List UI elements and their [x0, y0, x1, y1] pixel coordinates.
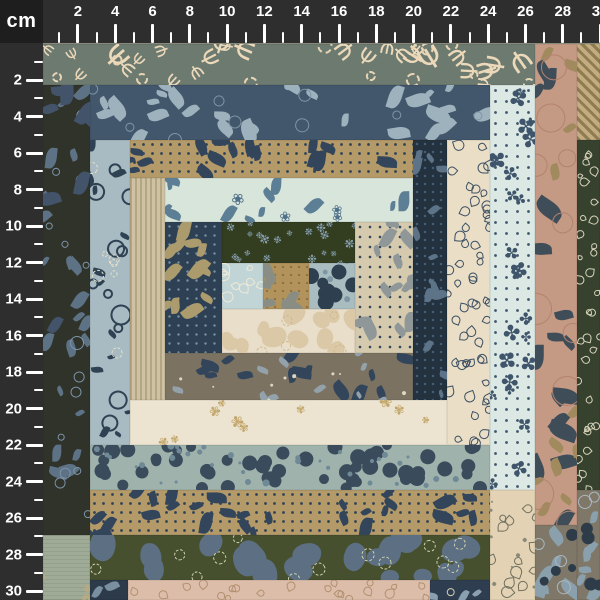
fabric-motif: [401, 280, 413, 294]
fabric-motif: [473, 103, 490, 125]
major-tick-left: [26, 407, 43, 410]
fabric-motif: [57, 434, 64, 441]
fabric-motif: [582, 546, 591, 562]
fabric-motif: ✾: [419, 413, 431, 425]
fabric-motif: ✤: [519, 311, 534, 328]
fabric-motif: [245, 276, 256, 287]
fabric-motif: [271, 462, 287, 478]
fabric-motif: ❁: [43, 569, 50, 582]
fabric-motif: [241, 470, 246, 475]
fabric-motif: [247, 122, 261, 134]
fabric-motif: [484, 214, 490, 224]
fabric-motif: [71, 466, 82, 477]
major-tick-left: [26, 115, 43, 118]
fabric-motif: [498, 513, 507, 522]
fabric-motif: [222, 332, 235, 349]
fabric-motif: [235, 535, 266, 568]
fabric-motif: [91, 267, 106, 277]
fabric-motif: [395, 463, 415, 483]
fabric-motif: [361, 362, 368, 371]
fabric-motif: [304, 364, 312, 377]
top-ruler: 24681012141618202224262830: [0, 0, 600, 43]
fabric-motif: [469, 239, 482, 252]
fabric-motif: [548, 457, 564, 477]
fabric-motif: [577, 454, 585, 465]
minor-tick-left: [34, 61, 43, 63]
fabric-motif: [582, 333, 593, 344]
fabric-motif: [363, 448, 380, 465]
fabric-motif: [535, 81, 545, 101]
fabric-motif: [382, 490, 395, 500]
fabric-motif: [133, 463, 150, 480]
fabric-motif: [101, 287, 114, 300]
fabric-motif: [472, 110, 484, 122]
fabric-motif: ✾: [228, 411, 247, 431]
fabric-motif: [291, 366, 313, 380]
fabric-motif: [326, 275, 334, 283]
fabric-motif: [368, 445, 383, 460]
fabric-motif: [398, 191, 409, 211]
fabric-motif: ✤: [525, 116, 535, 127]
fabric-motif: [216, 591, 225, 600]
fabric-motif: [250, 562, 273, 580]
fabric-patch-woven: [130, 178, 165, 400]
fabric-motif: [385, 85, 405, 110]
ruler-number-left-4: 4: [14, 108, 22, 125]
fabric-motif: [596, 333, 600, 341]
fabric-motif: [462, 359, 471, 368]
major-tick-top: [375, 24, 378, 43]
fabric-motif: [585, 153, 592, 160]
fabric-motif: ✾: [214, 400, 225, 407]
fabric-motif: [279, 309, 309, 328]
fabric-motif: [295, 458, 301, 464]
fabric-motif: [50, 70, 64, 84]
fabric-motif: [279, 313, 295, 329]
fabric-motif: ❉: [329, 247, 339, 257]
fabric-motif: [94, 446, 101, 453]
fabric-motif: [236, 369, 253, 381]
fabric-motif: [522, 502, 535, 515]
fabric-motif: [263, 278, 272, 288]
fabric-motif: [90, 278, 99, 290]
fabric-motif: [165, 490, 178, 506]
fabric-motif: [109, 52, 124, 67]
fabric-motif: [553, 506, 576, 525]
fabric-patch-pinkleaves: [128, 580, 430, 600]
fabric-motif: [43, 207, 54, 227]
fabric-motif: [481, 296, 490, 306]
fabric-motif: [283, 353, 302, 365]
fabric-motif: [269, 383, 273, 387]
fabric-motif: [479, 189, 488, 198]
fabric-motif: [72, 369, 87, 384]
fabric-patch-dkgreenleaf: [577, 140, 600, 490]
fabric-motif: [96, 278, 105, 287]
fabric-motif: [199, 358, 220, 373]
fabric-motif: [157, 85, 173, 92]
fabric-motif: [329, 309, 340, 320]
fabric-patch-braid: [577, 44, 600, 140]
fabric-motif: [380, 459, 401, 480]
fabric-motif: [117, 479, 129, 490]
fabric-motif: [260, 187, 276, 203]
fabric-motif: [254, 559, 278, 580]
fabric-motif: ❉: [316, 222, 327, 235]
minor-tick-left: [34, 499, 43, 501]
fabric-motif: [490, 500, 493, 503]
fabric-motif: [265, 392, 279, 400]
fabric-motif: [412, 566, 434, 580]
fabric-motif: ❉: [285, 229, 294, 237]
fabric-motif: ✤: [507, 264, 527, 283]
fabric-motif: Ψ: [97, 44, 133, 76]
fabric-motif: ✤: [503, 186, 523, 205]
fabric-motif: [456, 507, 471, 519]
fabric-motif: [577, 494, 593, 510]
fabric-motif: [490, 553, 498, 566]
fabric-motif: [236, 517, 253, 535]
fabric-motif: [586, 421, 595, 430]
fabric-motif: [198, 511, 213, 535]
fabric-motif: Ψ: [162, 71, 183, 85]
fabric-motif: [168, 454, 176, 462]
major-tick-left: [26, 444, 43, 447]
fabric-motif: [462, 445, 482, 457]
fabric-motif: [147, 490, 159, 507]
fabric-motif: Ψ: [379, 44, 397, 55]
fabric-motif: [134, 465, 138, 469]
fabric-motif: [169, 237, 186, 255]
fabric-motif: [310, 309, 332, 332]
fabric-motif: [47, 466, 67, 480]
ruler-number-top-26: 26: [517, 3, 534, 20]
fabric-motif: [391, 253, 404, 269]
fabric-motif: [259, 469, 276, 486]
fabric-motif: [209, 463, 215, 469]
fabric-motif: [106, 388, 130, 412]
ruler-number-left-28: 28: [5, 546, 22, 563]
fabric-patch-beigepaisley: [490, 490, 535, 600]
fabric-motif: [343, 295, 350, 302]
fabric-motif: [318, 459, 322, 463]
major-tick-left: [26, 517, 43, 520]
fabric-motif: [444, 44, 458, 52]
fabric-motif: [57, 98, 67, 108]
fabric-motif: [548, 162, 561, 180]
ruler-number-top-24: 24: [480, 3, 497, 20]
fabric-motif: [228, 585, 236, 593]
fabric-motif: [129, 490, 147, 501]
fabric-motif: [338, 498, 349, 510]
fabric-motif: [532, 584, 535, 588]
fabric-motif: [212, 94, 227, 109]
fabric-motif: [430, 288, 447, 302]
fabric-motif: [220, 508, 237, 518]
fabric-motif: [165, 178, 181, 187]
fabric-motif: [535, 581, 550, 596]
fabric-motif: [128, 587, 139, 598]
fabric-patch-beigeleaf: [355, 222, 413, 353]
fabric-motif: Ψ: [113, 55, 137, 78]
ruler-number-top-12: 12: [256, 3, 273, 20]
fabric-motif: [64, 339, 78, 358]
fabric-motif: [270, 178, 281, 195]
fabric-motif: [400, 535, 426, 554]
major-tick-top: [114, 24, 117, 43]
fabric-motif: [476, 251, 484, 259]
ruler-number-left-2: 2: [14, 72, 22, 89]
fabric-motif: [314, 327, 336, 352]
fabric-motif: [96, 466, 113, 483]
fabric-patch-olivepaisley: [43, 85, 90, 535]
fabric-motif: [583, 540, 598, 557]
fabric-motif: [376, 555, 392, 571]
fabric-motif: [336, 461, 358, 483]
fabric-motif: [461, 467, 474, 480]
fabric-motif: [360, 317, 380, 341]
fabric-motif: [380, 568, 400, 580]
fabric-motif: [256, 453, 274, 471]
fabric-motif: ✾: [377, 400, 396, 411]
fabric-motif: [513, 557, 522, 566]
left-ruler: 24681012141618202224262830: [0, 0, 43, 600]
fabric-motif: [69, 148, 80, 162]
fabric-motif: [263, 263, 275, 275]
fabric-motif: [459, 238, 470, 249]
fabric-motif: [197, 580, 209, 590]
ruler-number-left-16: 16: [5, 327, 22, 344]
fabric-motif: [253, 456, 273, 476]
fabric-motif: [104, 452, 110, 458]
fabric-motif: Ψ: [127, 51, 146, 70]
fabric-patch-mintmaple: ✤✤✤✤✤✤✤✤✤✤✤✤✤✤✤✤✤✤✤✤✤✤✤✤: [490, 85, 535, 490]
fabric-motif: [237, 540, 270, 573]
fabric-patch-salmon: [535, 44, 577, 525]
fabric-motif: [438, 390, 445, 399]
fabric-motif: [326, 466, 330, 470]
fabric-motif: [551, 375, 577, 407]
fabric-motif: [259, 207, 266, 218]
minor-tick-top: [357, 32, 359, 43]
fabric-motif: [454, 259, 465, 270]
fabric-motif: [420, 448, 437, 465]
major-tick-top: [338, 24, 341, 43]
fabric-motif: [397, 228, 413, 249]
fabric-motif: [227, 114, 244, 131]
fabric-patch-navytanleaf: [165, 222, 222, 353]
major-tick-top: [487, 24, 490, 43]
fabric-motif: [197, 449, 203, 455]
fabric-motif: [147, 106, 169, 124]
fabric-motif: [322, 309, 341, 326]
fabric-motif: [319, 141, 337, 155]
fabric-motif: [577, 175, 590, 188]
fabric-motif: [324, 338, 349, 353]
fabric-motif: [464, 324, 479, 339]
fabric-motif: ✤: [512, 412, 535, 435]
fabric-motif: [117, 185, 130, 210]
fabric-motif: [539, 501, 552, 518]
ruler-number-left-18: 18: [5, 364, 22, 381]
fabric-motif: [565, 528, 577, 541]
fabric-motif: [444, 85, 455, 94]
fabric-ruler-image: ΨΨΨΨΨΨΨΨΨΨΨΨΨΨΨΨΨΨΨΨΨΨΨΨΨΨ❁❁❁✤✤✤✤✤✤✤✤✤✤✤…: [0, 0, 600, 600]
fabric-motif: [589, 345, 598, 354]
fabric-motif: [509, 564, 524, 579]
fabric-motif: [345, 263, 350, 266]
fabric-motif: [308, 140, 318, 153]
fabric-motif: [456, 359, 469, 372]
minor-tick-top: [319, 32, 321, 43]
fabric-patch-creamdoodle: ✾✾✾✾✾✾✾✾✾✾: [130, 400, 447, 445]
fabric-motif: [70, 335, 85, 350]
fabric-motif: [212, 386, 215, 389]
major-tick-left: [26, 261, 43, 264]
fabric-motif: [43, 102, 59, 116]
fabric-motif: ❉: [318, 226, 332, 241]
minor-tick-left: [34, 389, 43, 391]
fabric-motif: [329, 379, 352, 400]
fabric-motif: [468, 272, 478, 282]
fabric-motif: [90, 140, 96, 151]
major-tick-left: [26, 152, 43, 155]
minor-tick-top: [207, 32, 209, 43]
fabric-motif: [423, 89, 434, 100]
fabric-motif: [535, 150, 552, 182]
fabric-motif: ❀: [330, 210, 345, 222]
minor-tick-left: [34, 316, 43, 318]
fabric-motif: ✤: [515, 351, 535, 378]
fabric-motif: Ψ: [219, 44, 237, 54]
fabric-motif: [43, 332, 55, 353]
fabric-motif: [199, 292, 214, 305]
fabric-motif: [98, 95, 110, 110]
fabric-motif: [553, 308, 573, 322]
fabric-motif: [479, 198, 490, 213]
fabric-motif: [535, 59, 555, 83]
fabric-motif: [91, 366, 103, 374]
fabric-motif: [458, 205, 471, 218]
fabric-motif: [577, 473, 584, 485]
fabric-motif: Ψ: [445, 44, 474, 69]
fabric-motif: [499, 583, 516, 600]
fabric-motif: [587, 490, 600, 504]
fabric-motif: Ψ: [193, 47, 220, 72]
fabric-motif: [498, 521, 509, 532]
fabric-motif: [287, 367, 298, 383]
fabric-motif: [477, 162, 488, 173]
fabric-motif: [359, 517, 373, 535]
fabric-motif: [257, 390, 270, 400]
fabric-motif: [521, 76, 535, 85]
fabric-motif: [446, 587, 456, 597]
fabric-motif: [551, 555, 562, 572]
fabric-motif: [370, 445, 385, 460]
fabric-motif: [252, 145, 263, 161]
fabric-motif: [257, 324, 269, 339]
fabric-patch-plums: [309, 263, 355, 309]
fabric-motif: [560, 320, 577, 346]
fabric-motif: [90, 170, 97, 185]
fabric-motif: [222, 268, 227, 278]
fabric-motif: [43, 255, 50, 266]
fabric-motif: [556, 578, 573, 595]
major-tick-left: [26, 298, 43, 301]
fabric-motif: [349, 460, 363, 474]
ruler-number-left-10: 10: [5, 218, 22, 235]
fabric-motif: [476, 142, 486, 152]
fabric-motif: [50, 167, 60, 177]
fabric-motif: [64, 465, 79, 480]
fabric-motif: [265, 472, 283, 490]
fabric-motif: [579, 470, 587, 478]
fabric-motif: [91, 185, 98, 195]
fabric-motif: [385, 589, 395, 599]
fabric-motif: [535, 580, 548, 599]
fabric-motif: [80, 333, 90, 348]
fabric-motif: [470, 478, 489, 490]
fabric-motif: [81, 260, 90, 270]
fabric-motif: [387, 125, 411, 140]
fabric-motif: [528, 541, 535, 554]
fabric-motif: [591, 243, 597, 249]
fabric-motif: ❉: [323, 222, 334, 229]
fabric-motif: [257, 365, 270, 374]
fabric-motif: [529, 565, 535, 577]
fabric-motif: [108, 303, 130, 327]
fabric-motif: [165, 203, 173, 216]
fabric-motif: [200, 445, 207, 450]
fabric-motif: [459, 302, 470, 313]
fabric-motif: [222, 263, 230, 275]
fabric-motif: [535, 477, 555, 511]
fabric-motif: [293, 374, 297, 378]
fabric-motif: [183, 582, 193, 592]
fabric-patch-navyslate: [413, 140, 447, 400]
fabric-motif: [222, 270, 231, 282]
fabric-motif: [391, 108, 404, 121]
fabric-motif: [143, 556, 166, 580]
fabric-motif: [46, 315, 63, 335]
fabric-motif: [149, 452, 163, 466]
fabric-motif: [468, 69, 480, 81]
fabric-motif: [591, 421, 600, 432]
fabric-motif: [550, 387, 577, 405]
fabric-motif: [549, 389, 567, 407]
fabric-motif: [304, 196, 325, 217]
fabric-motif: [344, 275, 355, 294]
fabric-motif: [108, 163, 121, 176]
fabric-motif: [341, 113, 348, 126]
fabric-motif: [481, 203, 490, 215]
fabric-motif: [376, 456, 381, 461]
fabric-motif: [547, 419, 577, 443]
major-tick-left: [26, 371, 43, 374]
fabric-motif: [101, 250, 109, 258]
minor-tick-left: [34, 97, 43, 99]
fabric-motif: [140, 543, 162, 570]
fabric-motif: ✾: [156, 435, 172, 445]
fabric-motif: [90, 535, 120, 564]
minor-tick-left: [34, 572, 43, 574]
fabric-motif: [577, 376, 584, 386]
fabric-motif: [413, 156, 422, 175]
fabric-motif: [207, 492, 227, 503]
fabric-motif: [128, 127, 148, 140]
fabric-motif: [59, 467, 71, 479]
fabric-motif: [244, 215, 256, 222]
